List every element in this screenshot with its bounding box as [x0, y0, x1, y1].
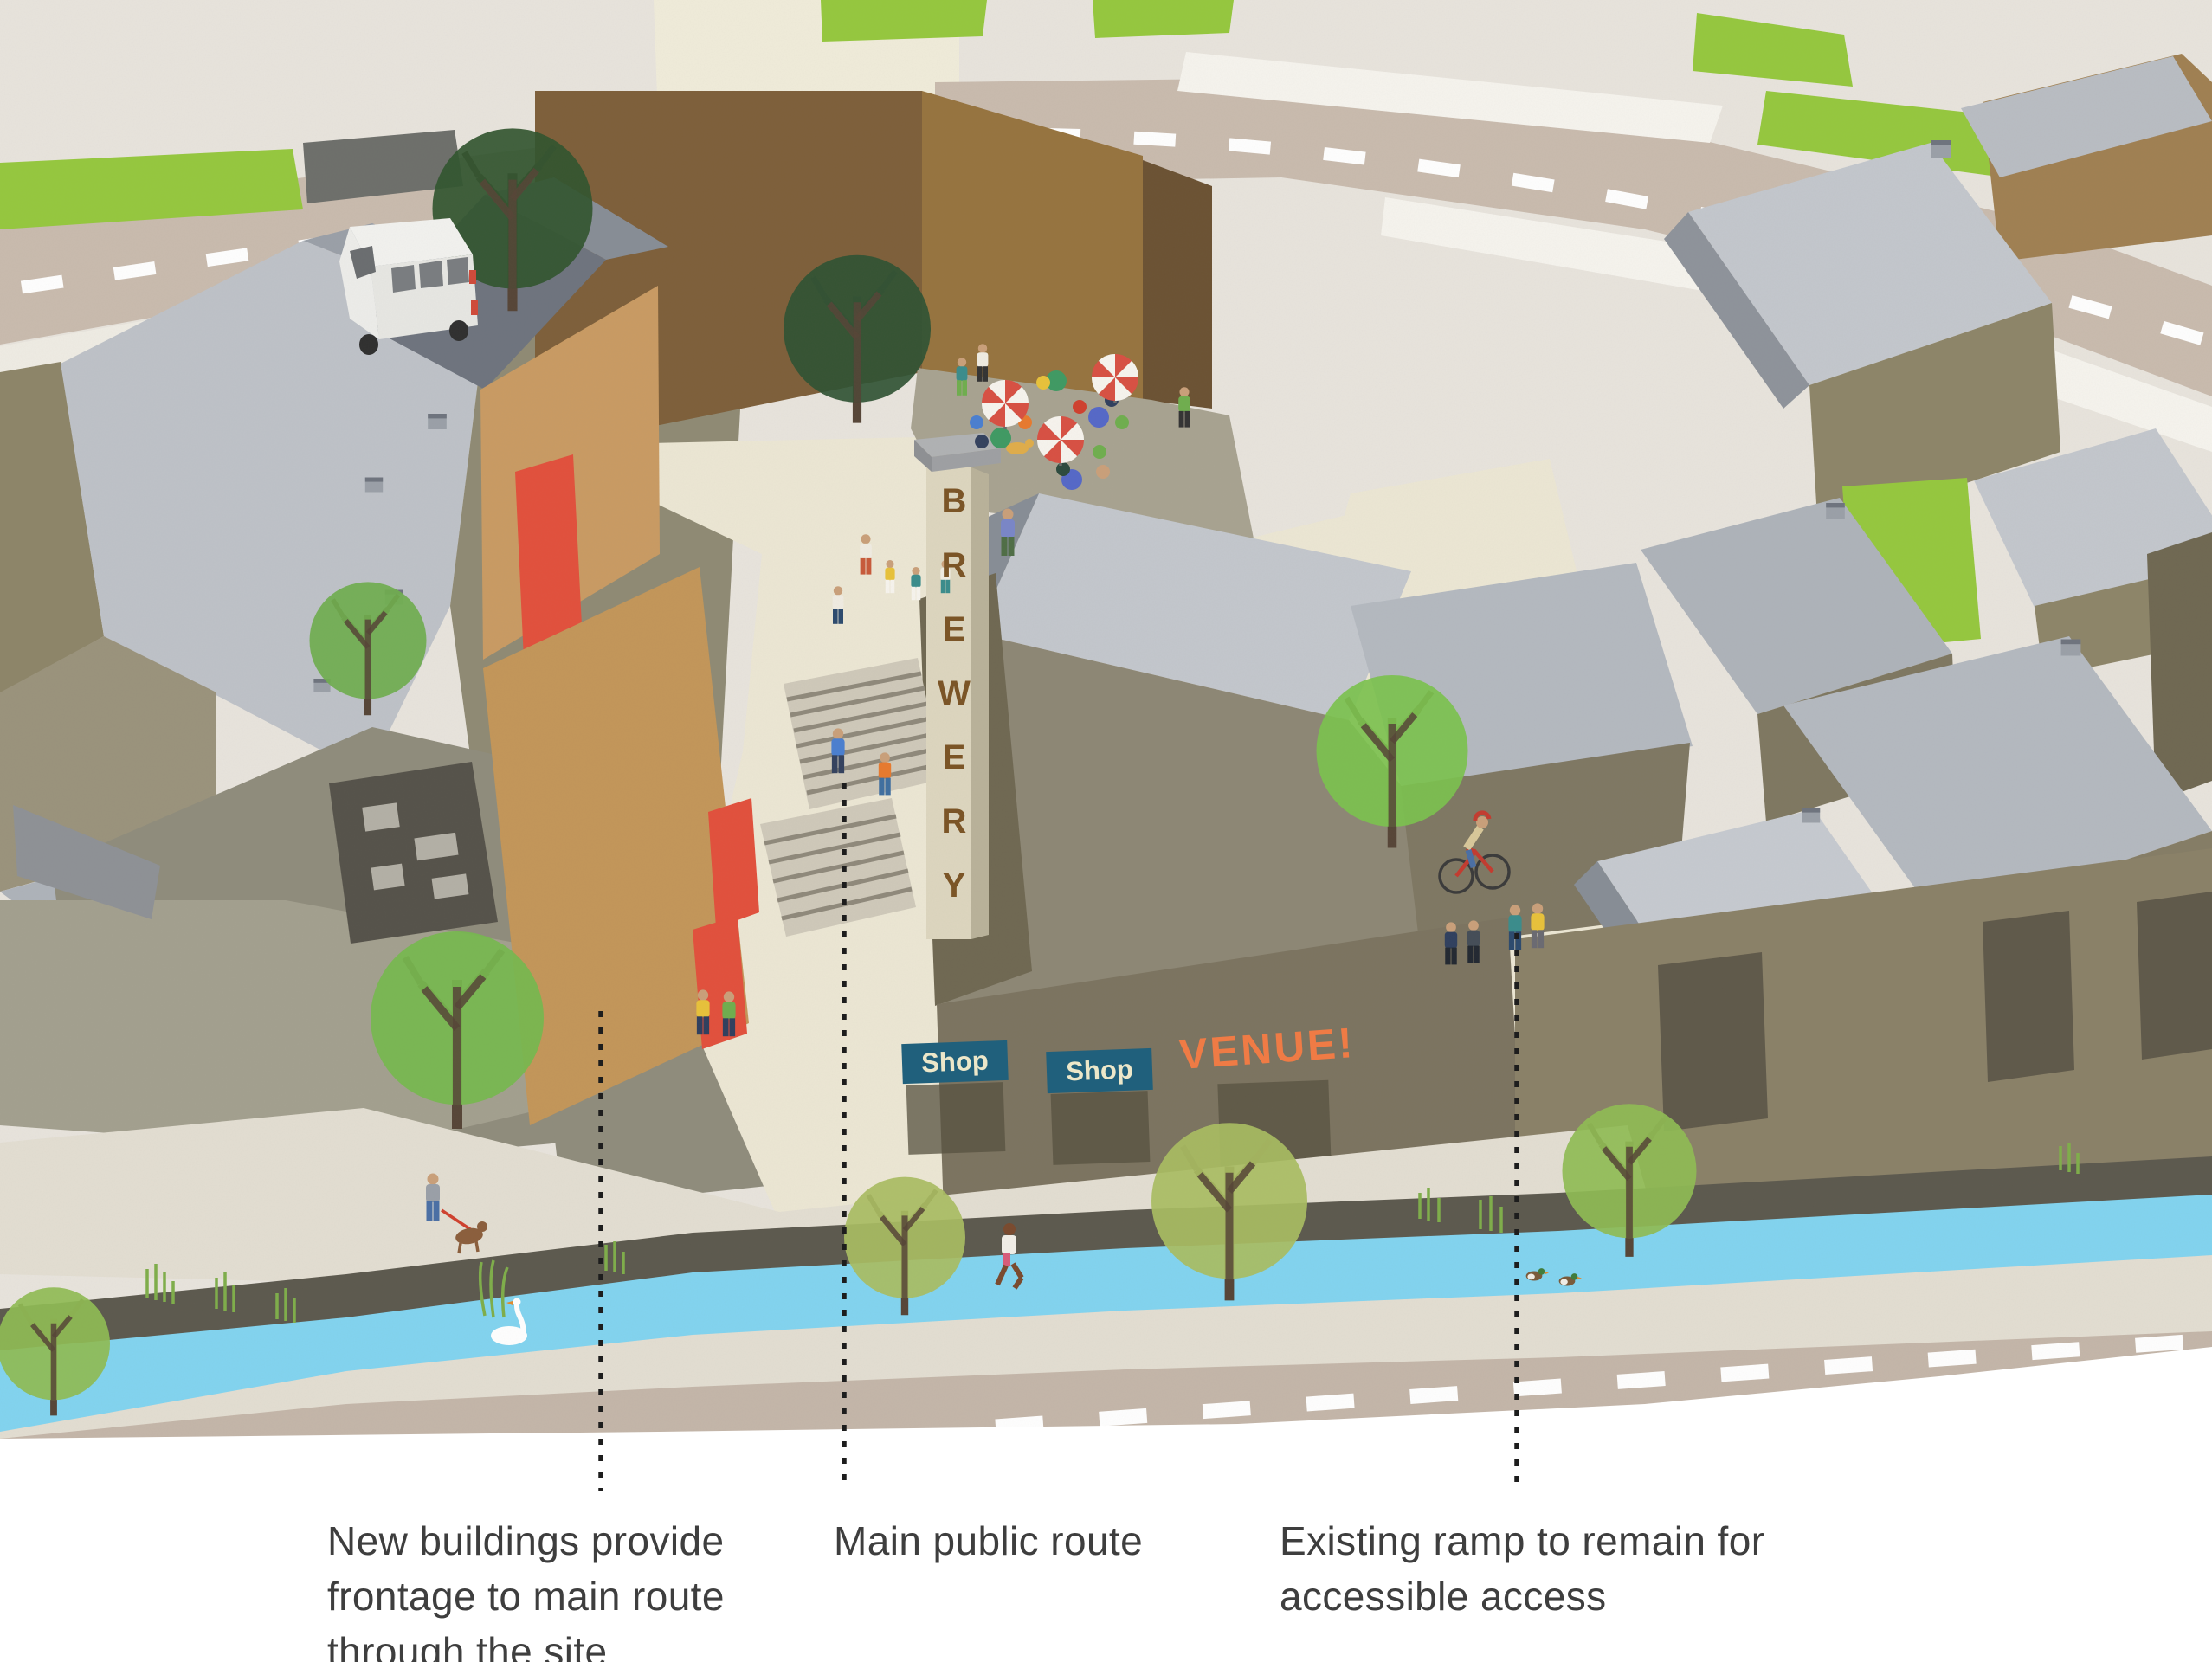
annotation-line: Existing ramp to remain for [1280, 1513, 1764, 1569]
shop-sign-left: Shop [901, 1040, 1009, 1084]
shop-sign-right: Shop [1046, 1048, 1153, 1093]
shop-sign-left-label: Shop [921, 1046, 990, 1079]
scene-canvas [0, 0, 2212, 1662]
annotation-line: frontage to main route [327, 1569, 725, 1624]
annotation-new-buildings: New buildings provide frontage to main r… [327, 1513, 725, 1662]
annotation-main-public-route: Main public route [834, 1513, 1143, 1569]
annotation-line: through the site [327, 1624, 725, 1662]
paper-texture [0, 0, 2212, 1454]
annotation-line: New buildings provide [327, 1513, 725, 1569]
brewery-sign: BREWERY [925, 481, 973, 931]
annotation-line: accessible access [1280, 1569, 1764, 1624]
annotation-existing-ramp: Existing ramp to remain for accessible a… [1280, 1513, 1764, 1624]
shop-sign-right-label: Shop [1066, 1054, 1134, 1088]
annotation-line: Main public route [834, 1513, 1143, 1569]
masterplan-illustration: BREWERY Shop Shop VENUE! New buildings p… [0, 0, 2212, 1662]
